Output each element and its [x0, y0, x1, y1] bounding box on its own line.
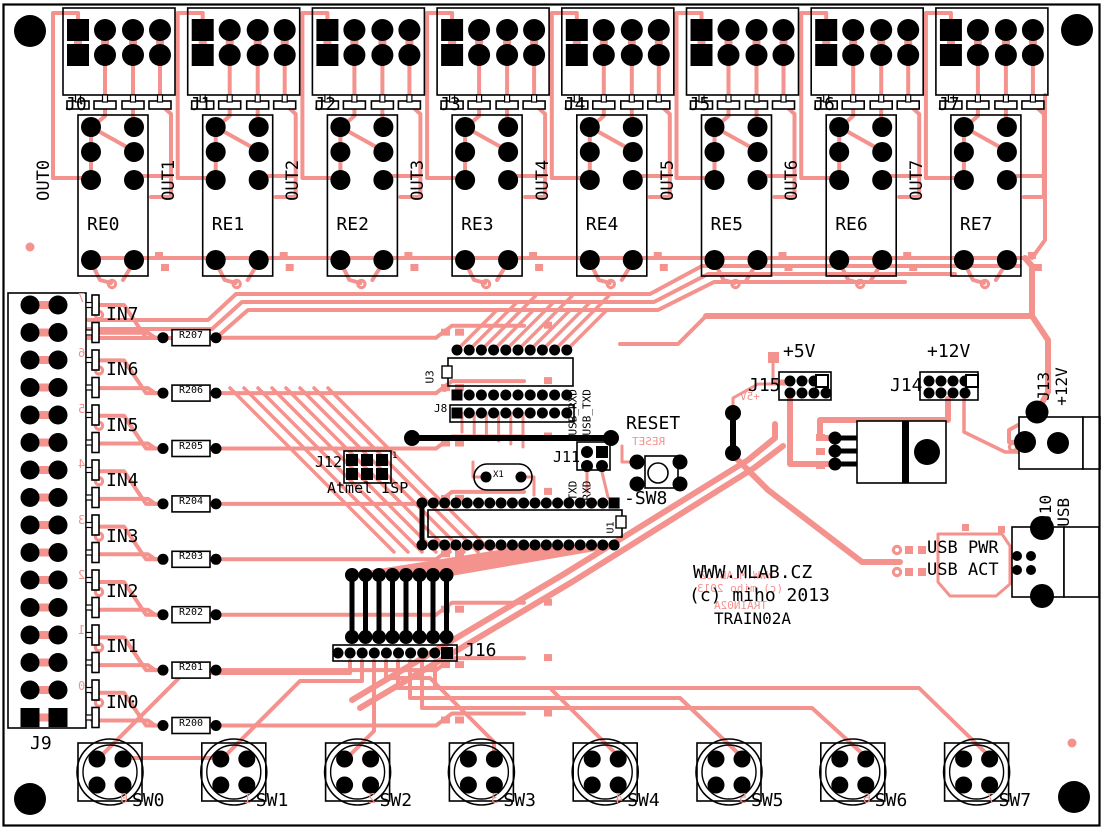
label-J6: J6 [813, 96, 835, 115]
label-J0: J0 [65, 96, 87, 115]
label-RE6: RE6 [835, 216, 868, 235]
label-OUT5: OUT5 [660, 160, 678, 201]
label-R207: R207 [169, 331, 213, 342]
label-IN5: IN5 [106, 417, 139, 436]
label-IN2: IN2 [106, 583, 139, 602]
wire-jumpers-j16 [345, 568, 454, 644]
power-jack-J13 [1014, 401, 1100, 470]
digit-SW4: 4 [615, 793, 623, 807]
label-R206: R206 [169, 386, 213, 397]
label-IN1: IN1 [106, 638, 139, 657]
digit-SW5: 5 [739, 793, 747, 807]
pin-digit-IN7: 7 [78, 292, 85, 305]
pin-digit-IN0: 0 [78, 680, 85, 693]
ic-U3 [442, 345, 573, 401]
pin-digit-IN4: 4 [78, 458, 85, 471]
pin-digit-IN3: 3 [78, 514, 85, 527]
label-J5: J5 [689, 96, 711, 115]
pin-digit-IN1: 1 [78, 624, 85, 637]
wire-jumper-v [725, 405, 741, 461]
label-OUT1: OUT1 [161, 160, 179, 201]
label-IN4: IN4 [106, 472, 139, 491]
pin-digit-IN6: 6 [78, 347, 85, 360]
label-SW7: SW7 [999, 792, 1032, 811]
label-u3-pin1: 1 [441, 385, 447, 396]
label-R200: R200 [169, 719, 213, 730]
digit-SW0: 0 [120, 793, 128, 807]
label-OUT0: OUT0 [36, 160, 54, 201]
label-j8: J8 [434, 403, 447, 415]
label-RE0: RE0 [87, 216, 120, 235]
label-SW2: SW2 [380, 792, 413, 811]
label-J1: J1 [190, 96, 212, 115]
label-sw8: -SW8 [624, 490, 667, 509]
label-R204: R204 [169, 497, 213, 508]
header-J15 [779, 372, 832, 400]
input-connector-J9 [8, 293, 99, 728]
label-plus12v: +12V [927, 343, 970, 362]
label-J3: J3 [439, 96, 461, 115]
label-copyright: (c) miho 2013 [689, 587, 830, 606]
label-j12-pin1: 1 [392, 452, 397, 461]
label-usb-txd: USB_TXD [581, 389, 593, 435]
digit-SW6: 6 [863, 793, 871, 807]
label-R202: R202 [169, 608, 213, 619]
label-SW3: SW3 [503, 792, 536, 811]
label-j11: J11 [553, 450, 580, 466]
label-j9: J9 [30, 735, 52, 754]
label-RE4: RE4 [586, 216, 619, 235]
label-OUT3: OUT3 [410, 160, 428, 201]
label-j13: J13 [1036, 372, 1053, 401]
label-name: TRAIN02A [714, 611, 791, 628]
label-j15: J15 [748, 377, 781, 396]
reset-button-SW8 [630, 455, 688, 492]
label-x1: X1 [493, 471, 504, 480]
label-IN7: IN7 [106, 306, 139, 325]
label-J2: J2 [314, 96, 336, 115]
label-j16: J16 [464, 642, 497, 661]
label-txd: TXD [567, 481, 579, 501]
label-RE3: RE3 [461, 216, 494, 235]
label-IN0: IN0 [106, 694, 139, 713]
label-RE1: RE1 [212, 216, 245, 235]
label-OUT7: OUT7 [909, 160, 927, 201]
label-IN6: IN6 [106, 361, 139, 380]
pcb-graphics [0, 0, 1107, 832]
label-RE2: RE2 [336, 216, 369, 235]
label-j12: J12 [315, 455, 342, 471]
label-usb-act: USB ACT [927, 562, 999, 580]
label-J7: J7 [938, 96, 960, 115]
header-J11 [577, 442, 610, 472]
label-SW4: SW4 [627, 792, 660, 811]
label-site: WWW.MLAB.CZ [693, 564, 812, 583]
label-plus5v: +5V [783, 343, 816, 362]
label-OUT2: OUT2 [286, 160, 304, 201]
regulator-U4 [829, 421, 947, 483]
label-j10: J10 [1038, 495, 1055, 524]
label-J4: J4 [564, 96, 586, 115]
label-u3: U3 [424, 370, 436, 383]
label-usb-pwr: USB PWR [927, 540, 999, 558]
pin-digit-IN2: 2 [78, 569, 85, 582]
label-j13-net: +12V [1054, 367, 1071, 406]
label-SW6: SW6 [875, 792, 908, 811]
label-RE5: RE5 [711, 216, 744, 235]
header-J14 [920, 372, 978, 400]
label-R205: R205 [169, 442, 213, 453]
label-RE7: RE7 [960, 216, 993, 235]
pcb-layout-train02a: J9 U3 1 J8 J12 1 Atmel ISP X1 J11 USB_RX… [0, 0, 1107, 832]
label-rxd: RXD [581, 481, 593, 501]
label-SW0: SW0 [132, 792, 165, 811]
label-OUT4: OUT4 [535, 160, 553, 201]
label-atmel-isp: Atmel ISP [327, 481, 408, 497]
label-reset-mirror: RESET [632, 436, 665, 448]
label-SW5: SW5 [751, 792, 784, 811]
digit-SW2: 2 [368, 793, 376, 807]
label-IN3: IN3 [106, 528, 139, 547]
label-R201: R201 [169, 663, 213, 674]
label-OUT6: OUT6 [784, 160, 802, 201]
usb-connector-J10 [1012, 516, 1099, 608]
digit-SW1: 1 [244, 793, 252, 807]
label-R203: R203 [169, 552, 213, 563]
pin-digit-IN5: 5 [78, 403, 85, 416]
label-SW1: SW1 [256, 792, 289, 811]
label-j14: J14 [890, 377, 923, 396]
digit-SW3: 3 [491, 793, 499, 807]
label-u1: U1 [607, 521, 618, 533]
label-reset: RESET [626, 415, 680, 434]
label-j10-net: USB [1056, 498, 1073, 527]
label-usb-rxd: USB_RXD [567, 389, 579, 435]
digit-SW7: 7 [987, 793, 995, 807]
